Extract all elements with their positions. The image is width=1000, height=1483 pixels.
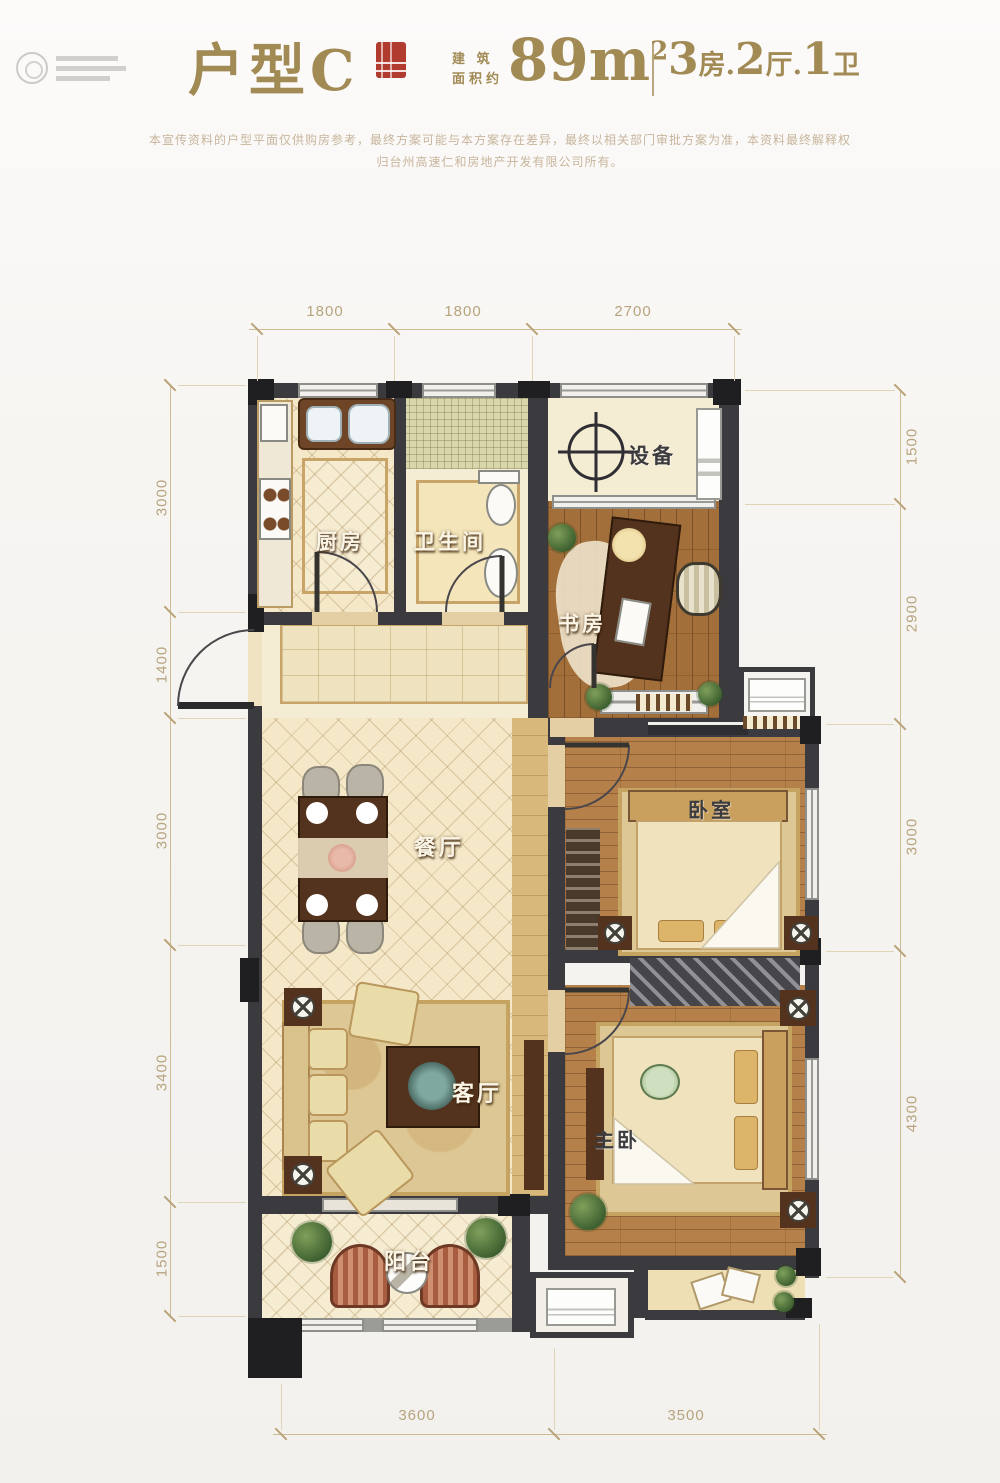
ac-outdoor-unit (748, 678, 806, 712)
dim-top-2: 1800 (433, 303, 493, 320)
area-label-line1: 建 筑 (452, 50, 494, 67)
stove (259, 478, 291, 540)
plant (698, 682, 722, 706)
layout-summary: 3房.2厅.1卫 (668, 34, 860, 85)
room-label-study: 书房 (558, 608, 606, 638)
desk-lamp (612, 528, 646, 562)
column-post (518, 381, 550, 398)
wall (634, 1256, 648, 1318)
dim-ext (178, 945, 246, 946)
equipment-window (560, 383, 708, 398)
master-door-opening (548, 990, 565, 1052)
column-post (796, 1248, 821, 1276)
master-wardrobe (630, 958, 800, 1006)
page-title: 户型C (188, 26, 360, 107)
dim-line-top (249, 329, 742, 330)
pillow (734, 1050, 758, 1104)
dim-ext (532, 336, 533, 381)
entry-door-leaf (178, 702, 254, 709)
logo-text-line (56, 76, 110, 81)
dim-line-bottom (273, 1434, 827, 1435)
column-post (800, 716, 821, 744)
column-post (498, 1194, 530, 1216)
wall (528, 395, 548, 718)
dim-ext (734, 336, 735, 381)
hall-count: 2 (735, 34, 766, 85)
plate (306, 802, 328, 824)
dim-right-3: 3000 (904, 807, 921, 867)
wall (512, 1196, 530, 1332)
sink-basin (306, 406, 342, 442)
fridge (260, 404, 288, 442)
room-label-kitchen: 厨房 (316, 526, 364, 556)
plant (466, 1218, 506, 1258)
column-post (248, 1354, 278, 1378)
equipment-unit (696, 408, 722, 500)
dim-right-1: 1500 (904, 417, 921, 477)
pillow (734, 1116, 758, 1170)
plant (570, 1194, 606, 1230)
study-radiator-grille (636, 694, 692, 711)
column-post (713, 379, 741, 405)
table-centerpiece (328, 844, 356, 872)
balcony-chair (330, 1244, 390, 1308)
coffee-table-decor (408, 1062, 456, 1110)
room-count: 3 (668, 34, 699, 85)
plate (306, 894, 328, 916)
kitchen-door-opening (312, 612, 378, 625)
dim-top-1: 1800 (295, 303, 355, 320)
room-label-equipment: 设备 (628, 440, 676, 470)
balcony-sliding-door (322, 1198, 458, 1212)
sink-basin (348, 404, 390, 444)
room-label-living: 客厅 (452, 1076, 502, 1108)
toilet-tank (478, 470, 520, 484)
dim-ext (819, 1324, 820, 1430)
study-door-opening (550, 718, 594, 737)
plant (776, 1266, 796, 1286)
bedroom-door-opening (548, 745, 565, 807)
dim-bottom-2: 3500 (656, 1407, 716, 1424)
kitchen-window (298, 383, 378, 398)
equipment-study-window (552, 495, 716, 509)
dim-ext (826, 1277, 894, 1278)
balcony-window (382, 1318, 478, 1332)
bed-decor (640, 1064, 680, 1100)
floorplan-sheet: 户型C 建 筑 面积约 89m2 3房.2厅.1卫 本宣传资料的户型平面仅供购房… (0, 0, 1000, 1483)
bedroom-ac-wall-unit (648, 722, 748, 735)
dim-ext (178, 612, 246, 613)
brand-seal-stamp (376, 42, 406, 78)
master-side-window (805, 1058, 819, 1180)
plant (548, 524, 576, 552)
dim-ext (178, 718, 246, 719)
plate (356, 894, 378, 916)
room-label-balcony: 阳台 (384, 1244, 434, 1276)
ac-outdoor-unit (546, 1288, 616, 1326)
area-number: 89m (508, 26, 650, 94)
dim-right-4: 4300 (904, 1084, 921, 1144)
dim-left-1: 3000 (154, 468, 171, 528)
dim-left-3: 3000 (154, 801, 171, 861)
shower-area (402, 393, 528, 469)
wall (248, 706, 262, 1318)
nightstand-lamp-icon (787, 997, 810, 1020)
sofa-cushion (308, 1074, 348, 1116)
bathroom-door-opening (442, 612, 504, 625)
plate (356, 802, 378, 824)
dim-ext (826, 724, 894, 725)
dim-left-2: 1400 (154, 635, 171, 695)
side-table-lamp-icon (291, 1163, 315, 1187)
title-divider (652, 44, 654, 96)
plant (774, 1292, 794, 1312)
side-table-lamp-icon (291, 995, 315, 1019)
area-label-line2: 面积约 (452, 70, 503, 87)
area-value: 89m2 (508, 26, 668, 94)
dim-right-2: 2900 (904, 584, 921, 644)
room-count-suffix: 房. (699, 50, 735, 81)
dim-line-right (900, 390, 901, 1277)
dim-left-5: 1500 (154, 1229, 171, 1289)
plant (586, 684, 612, 710)
tv-cabinet (524, 1040, 544, 1190)
dim-ext (394, 336, 395, 381)
nightstand-lamp-icon (787, 1199, 810, 1222)
dim-ext (745, 504, 895, 505)
bath-count-suffix: 卫 (833, 50, 860, 81)
bath-count: 1 (802, 34, 833, 85)
wash-basin (484, 548, 518, 598)
wall (719, 383, 739, 737)
pillow (658, 920, 704, 942)
dim-bottom-1: 3600 (387, 1407, 447, 1424)
bedroom-side-window (805, 788, 819, 900)
hall-count-suffix: 厅. (766, 50, 802, 81)
dim-ext (257, 336, 258, 381)
sofa-cushion (308, 1028, 348, 1070)
nightstand-lamp-icon (790, 922, 812, 944)
room-label-bathroom: 卫生间 (414, 526, 486, 556)
dim-ext (281, 1384, 282, 1430)
entry-door-opening (248, 632, 262, 706)
sofa-back (282, 1022, 310, 1170)
nightstand-lamp-icon (604, 922, 626, 944)
room-label-bedroom: 卧室 (688, 794, 734, 823)
logo-text-line (56, 66, 126, 71)
column-post (240, 958, 259, 1002)
dim-ext (554, 1348, 555, 1430)
bathroom-window (422, 383, 496, 398)
entry-rug (280, 624, 528, 704)
toilet-bowl (486, 484, 516, 526)
logo-text-line (56, 56, 118, 61)
column-post (386, 381, 412, 398)
dim-top-3: 2700 (603, 303, 663, 320)
dim-ext (178, 1202, 246, 1203)
master-headboard (762, 1030, 788, 1190)
wall (255, 612, 548, 625)
dim-ext (178, 1316, 246, 1317)
disclaimer-line2: 归台州高速仁和房地产开发有限公司所有。 (0, 153, 1000, 170)
dim-ext (178, 385, 246, 386)
entry-door-arc (178, 630, 254, 706)
room-label-dining: 餐厅 (414, 830, 464, 862)
dim-ext (826, 951, 894, 952)
dim-left-4: 3400 (154, 1043, 171, 1103)
armchair (348, 981, 421, 1047)
disclaimer-line1: 本宣传资料的户型平面仅供购房参考，最终方案可能与本方案存在差异，最终以相关部门审… (0, 131, 1000, 148)
room-label-master: 主卧 (594, 1124, 640, 1153)
dim-ext (745, 390, 895, 391)
plant (292, 1222, 332, 1262)
pillow (714, 920, 760, 942)
study-chair (676, 562, 722, 616)
developer-logo-icon (16, 52, 48, 84)
bedroom-wardrobe (566, 828, 600, 950)
